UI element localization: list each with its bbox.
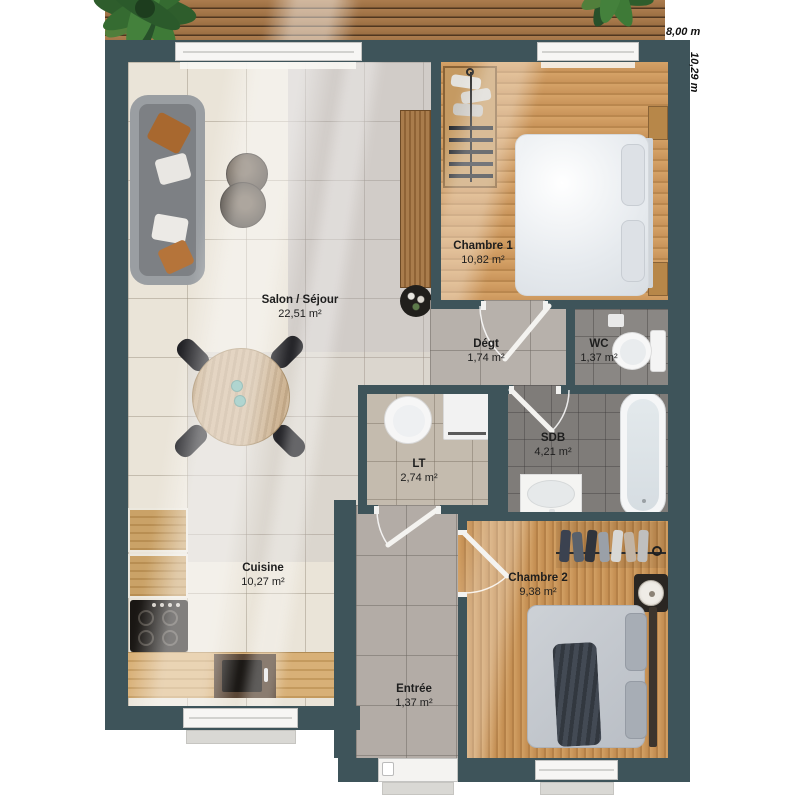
sofa-cushion <box>146 111 192 154</box>
floor-chambre-2 <box>458 512 668 758</box>
room-area: 2,74 m² <box>339 471 499 485</box>
burner <box>162 610 178 626</box>
burner <box>138 630 154 646</box>
room-name: Chambre 2 <box>458 572 618 585</box>
washing-machine <box>384 396 432 444</box>
bathtub-drain <box>642 499 646 503</box>
bed-headboard <box>649 607 657 747</box>
wardrobe <box>443 66 497 188</box>
wall-chambre1-bottom-a <box>441 300 484 309</box>
wall-entree-left <box>334 500 356 758</box>
room-name: SDB <box>473 432 633 445</box>
open-closet <box>556 522 666 568</box>
kitchen-sink <box>222 660 262 692</box>
cooktop <box>130 600 188 652</box>
light-shaft <box>458 512 537 758</box>
wall-left <box>105 40 128 730</box>
window-salon <box>175 42 362 61</box>
room-area: 22,51 m² <box>220 307 380 321</box>
room-area: 1,37 m² <box>519 351 679 365</box>
room-name: Cuisine <box>183 562 343 575</box>
clothes-bar <box>449 126 493 130</box>
entrance-step <box>382 782 454 795</box>
washbasin <box>527 480 575 508</box>
clothes-item <box>453 103 484 117</box>
clothes-bar <box>449 162 493 166</box>
cup <box>231 380 243 392</box>
wall-sdb-top-a <box>508 385 513 394</box>
wall-chambre2-left-a <box>458 521 467 535</box>
room-label-chambre-2: Chambre 2 9,38 m² <box>458 572 618 599</box>
pillow <box>625 613 647 671</box>
sofa <box>130 95 205 285</box>
hanger-hook-icon <box>466 68 474 76</box>
cup <box>234 395 246 407</box>
cooktop-knob <box>152 603 156 607</box>
wall-lt-top <box>358 385 497 394</box>
window-sill <box>180 62 356 69</box>
lamp-center <box>649 591 655 597</box>
bed-1 <box>515 128 655 302</box>
room-label-cuisine: Cuisine 10,27 m² <box>183 562 343 589</box>
exterior-step <box>186 730 296 744</box>
room-area: 10,27 m² <box>183 575 343 589</box>
window-sill <box>541 62 635 68</box>
burner <box>162 630 178 646</box>
wall-chambre1-bottom-b <box>545 300 668 309</box>
clothes-item <box>611 530 624 563</box>
wall-chambre2-top <box>458 512 668 521</box>
room-label-salon: Salon / Séjour 22,51 m² <box>220 294 380 321</box>
room-name: Salon / Séjour <box>220 294 380 307</box>
room-label-wc: WC 1,37 m² <box>519 338 679 365</box>
wall-lt-left <box>358 385 367 514</box>
clothes-item <box>450 74 481 90</box>
floor-chambre-1 <box>441 62 668 308</box>
pillow <box>621 144 645 206</box>
room-area: 1,37 m² <box>334 696 494 710</box>
clothes-item <box>584 530 597 563</box>
front-door <box>378 758 458 782</box>
room-name: WC <box>519 338 679 351</box>
washer-drum <box>393 405 425 437</box>
clothes-item <box>460 87 492 104</box>
kitchen-sink-unit <box>214 654 276 698</box>
door-handle-icon <box>382 762 394 776</box>
bed-2 <box>527 605 655 750</box>
exterior-step <box>540 782 614 795</box>
clothes-item <box>572 532 585 563</box>
hanger-ring-icon <box>652 546 662 556</box>
clothes-item <box>623 532 636 563</box>
room-label-chambre-1: Chambre 1 10,82 m² <box>403 240 563 267</box>
burner <box>138 610 154 626</box>
pillow <box>625 681 647 739</box>
cooktop-knob <box>160 603 164 607</box>
kitchen-cabinet <box>128 554 188 598</box>
deck-light-shaft <box>259 0 362 42</box>
dimension-width-label: 8,00 m <box>666 26 700 38</box>
room-label-lt: LT 2,74 m² <box>339 458 499 485</box>
wall-chambre2-left-b <box>458 597 467 758</box>
clothes-item <box>559 530 571 563</box>
room-area: 10,82 m² <box>403 253 563 267</box>
window-mullion <box>539 769 614 771</box>
plant-top-right-icon <box>545 0 680 45</box>
wall-right <box>668 40 690 782</box>
room-area: 9,38 m² <box>458 585 618 599</box>
clothes-item <box>637 530 649 562</box>
window-mullion <box>183 51 353 53</box>
kitchen-cabinet <box>128 508 188 552</box>
cooktop-knob <box>168 603 172 607</box>
window-chambre-2 <box>535 760 618 780</box>
faucet-icon <box>264 668 268 682</box>
clothes-item <box>598 532 610 563</box>
room-name: Chambre 1 <box>403 240 563 253</box>
cooktop-knob <box>176 603 180 607</box>
potted-plant-icon <box>400 285 431 317</box>
room-name: Entrée <box>334 683 494 696</box>
dimension-height-label: 10,29 m <box>688 52 700 92</box>
window-mullion <box>542 51 634 53</box>
wall-sdb-top-b <box>560 385 668 394</box>
window-chambre-1 <box>537 42 639 61</box>
pillow <box>621 220 645 282</box>
wall-chambre1-left <box>431 62 441 309</box>
room-label-entree: Entrée 1,37 m² <box>334 683 494 710</box>
clothes-bar <box>449 150 493 154</box>
floor-plan: Salon / Séjour 22,51 m² Chambre 1 10,82 … <box>0 0 800 800</box>
flush-plate <box>608 314 624 327</box>
sofa-pillow <box>154 152 192 185</box>
room-name: LT <box>339 458 499 471</box>
floor-entree <box>356 505 458 758</box>
room-area: 4,21 m² <box>473 445 633 459</box>
clothes-bar <box>449 138 493 142</box>
sofa-cushion <box>157 239 195 275</box>
throw-blanket <box>552 642 601 747</box>
table-lamp-icon <box>638 580 664 606</box>
room-label-sdb: SDB 4,21 m² <box>473 432 633 459</box>
wall-lt-bottom-a <box>358 505 378 514</box>
clothes-bar <box>449 174 493 178</box>
window-mullion <box>189 717 293 719</box>
window-kitchen <box>183 708 298 728</box>
coffee-table <box>220 182 266 228</box>
